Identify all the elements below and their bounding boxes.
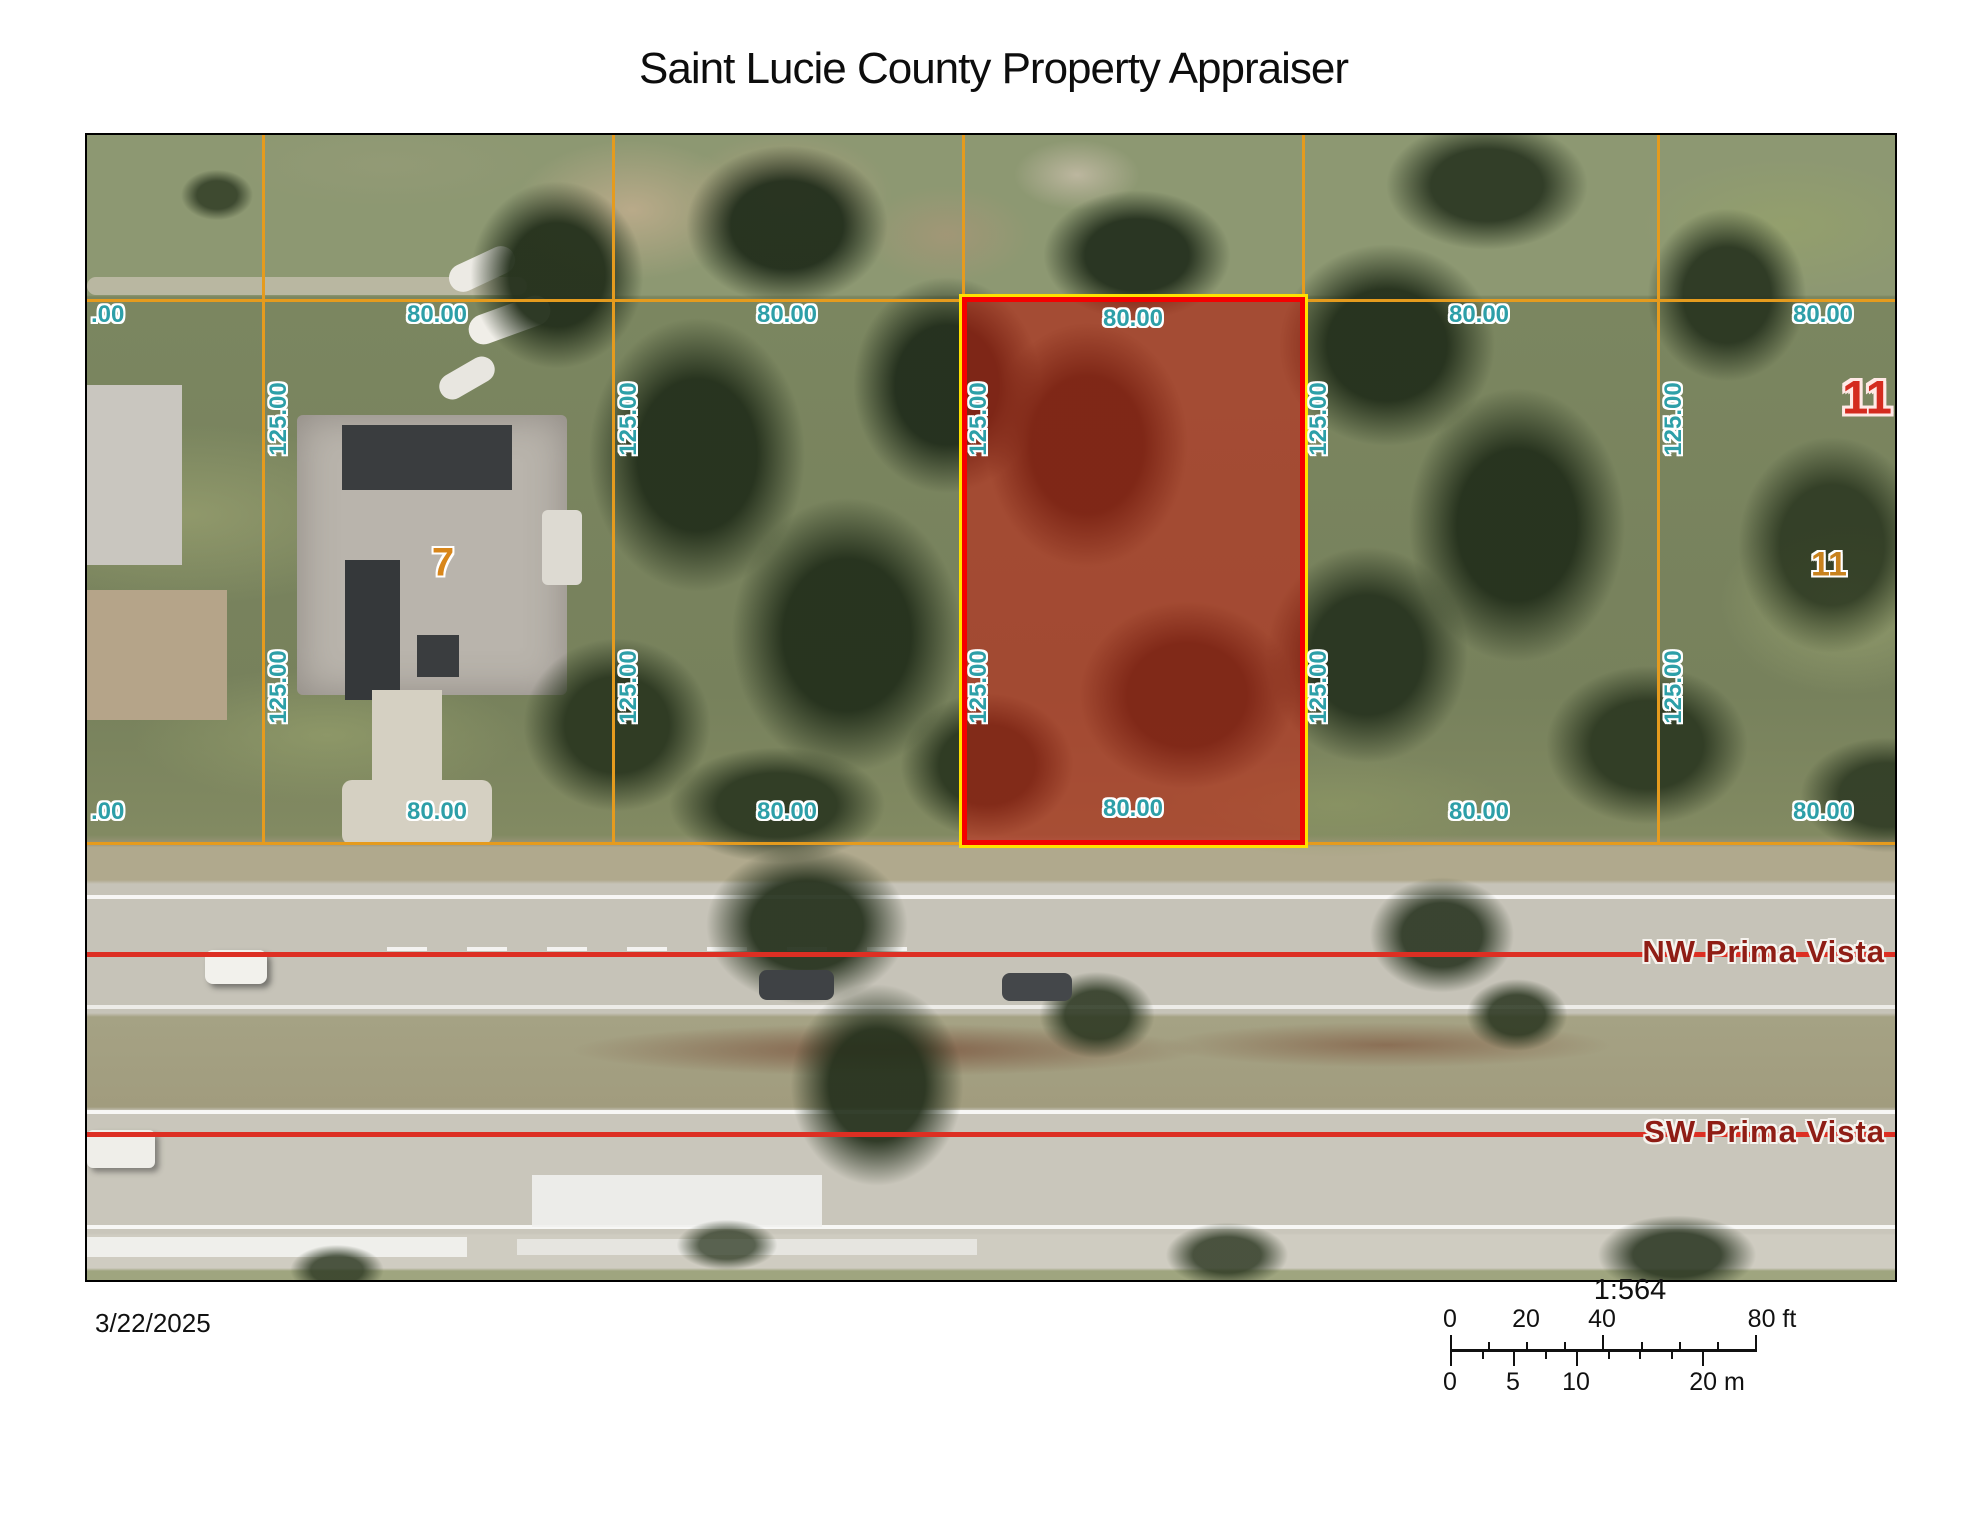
house-roof-dark-section-3 (417, 635, 459, 677)
house-roof-dark-section (342, 425, 512, 490)
dimension-label-vertical: 125.00 (1305, 650, 1333, 723)
highlighted-parcel[interactable] (962, 297, 1305, 845)
scale-ratio: 1:564 (1594, 1274, 1667, 1307)
meter-tick-label: 10 (1562, 1368, 1590, 1397)
boat-3 (435, 352, 500, 405)
dimension-label-vertical: 125.00 (615, 650, 643, 723)
tick (1639, 1351, 1641, 1359)
sidewalk-segment-1 (87, 1237, 467, 1257)
map-date: 3/22/2025 (95, 1308, 211, 1339)
tick (1482, 1351, 1484, 1359)
street-label-sw-prima-vista: SW Prima Vista (1644, 1114, 1885, 1150)
road-edge-line-4 (87, 1225, 1897, 1229)
dimension-label-vertical: 125.00 (265, 650, 293, 723)
meter-tick-label: 0 (1443, 1368, 1457, 1397)
page: Saint Lucie County Property Appraiser (0, 0, 1987, 1535)
tick (1450, 1335, 1452, 1350)
meter-tick-label: 5 (1506, 1368, 1520, 1397)
tick (1702, 1351, 1704, 1366)
dimension-label: 80.00 (1449, 301, 1509, 329)
tick (1608, 1351, 1610, 1359)
house-roof-left-neighbor (87, 385, 182, 565)
parcel-map[interactable]: .00 80.00 80.00 80.00 80.00 80.00 .00 80… (85, 133, 1897, 1282)
tick (1717, 1342, 1719, 1350)
street-centerline-nw (87, 952, 1897, 957)
street-label-nw-prima-vista: NW Prima Vista (1642, 934, 1885, 970)
dimension-label-vertical: 125.00 (1305, 382, 1333, 455)
tick (1564, 1342, 1566, 1350)
block-number-11-red: 11 (1842, 370, 1892, 425)
dimension-label: 80.00 (1103, 305, 1163, 333)
street-centerline-sw (87, 1132, 1897, 1137)
tick (1602, 1335, 1604, 1350)
feet-tick-label: 80 ft (1748, 1305, 1797, 1334)
trailer (542, 510, 582, 585)
dimension-label-vertical: 125.00 (965, 650, 993, 723)
dimension-label: 80.00 (1103, 795, 1163, 823)
pavement-slab (532, 1175, 822, 1227)
tick (1671, 1351, 1673, 1359)
dimension-label: 80.00 (757, 798, 817, 826)
dimension-label: 80.00 (407, 798, 467, 826)
house-roof-dark-section-2 (345, 560, 400, 700)
parcel-line-vertical-5 (1657, 135, 1660, 845)
sidewalk-segment-2 (517, 1239, 977, 1255)
tick (1576, 1351, 1578, 1366)
dimension-label: 80.00 (1793, 301, 1853, 329)
tick (1450, 1351, 1452, 1366)
lane-dashes (387, 947, 907, 951)
boat-1 (444, 242, 519, 297)
house-roof-left-neighbor-2 (87, 590, 227, 720)
dimension-label-vertical: 125.00 (265, 382, 293, 455)
tick (1488, 1342, 1490, 1350)
feet-tick-label: 0 (1443, 1305, 1457, 1334)
parcel-number-7: 7 (432, 541, 454, 586)
parcel-line-vertical-1 (262, 135, 265, 845)
block-number-11-orange: 11 (1811, 546, 1847, 585)
page-title: Saint Lucie County Property Appraiser (0, 44, 1987, 94)
dark-car-1 (759, 970, 834, 1000)
tick (1679, 1342, 1681, 1350)
dimension-label: 80.00 (757, 301, 817, 329)
dimension-label-vertical: 125.00 (965, 382, 993, 455)
feet-tick-label: 40 (1588, 1305, 1616, 1334)
tick (1545, 1351, 1547, 1359)
tick (1513, 1351, 1515, 1366)
dimension-label-vertical: 125.00 (1660, 650, 1688, 723)
road-edge-line-2 (87, 1005, 1897, 1009)
dimension-label-vertical: 125.00 (1660, 382, 1688, 455)
dimension-label-vertical: 125.00 (615, 382, 643, 455)
dimension-label: .00 (91, 798, 124, 826)
dirt-path (87, 277, 527, 295)
road-edge-line-3 (87, 1110, 1897, 1114)
meter-tick-label: 20 m (1689, 1368, 1745, 1397)
dimension-label: .00 (91, 301, 124, 329)
tick (1641, 1342, 1643, 1350)
parcel-line-vertical-2 (612, 135, 615, 845)
feet-tick-label: 20 (1512, 1305, 1540, 1334)
dimension-label: 80.00 (1793, 798, 1853, 826)
dark-car-2 (1002, 973, 1072, 1001)
tick (1526, 1342, 1528, 1350)
road-edge-line-1 (87, 895, 1897, 899)
tick (1755, 1335, 1757, 1350)
dimension-label: 80.00 (1449, 798, 1509, 826)
dimension-label: 80.00 (407, 301, 467, 329)
